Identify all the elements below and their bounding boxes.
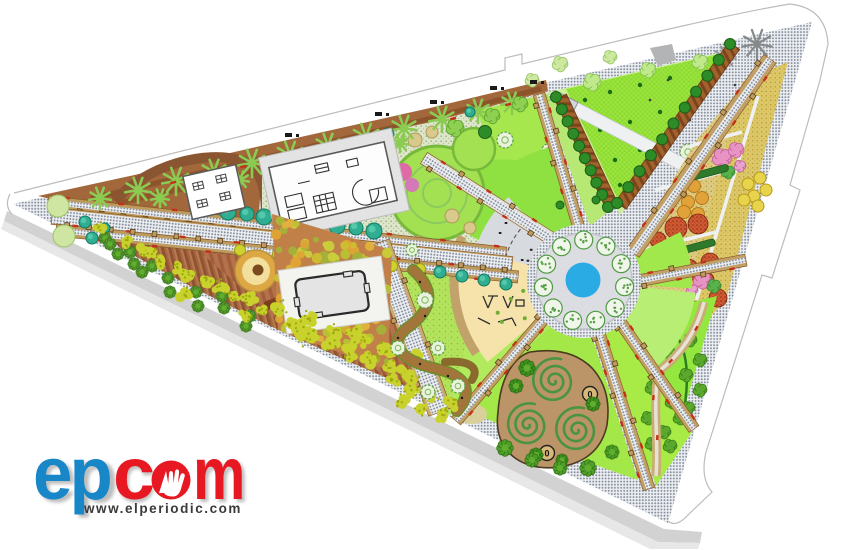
svg-text:0: 0 [544, 449, 549, 459]
svg-text:www.elperiodic.com: www.elperiodic.com [83, 500, 242, 516]
